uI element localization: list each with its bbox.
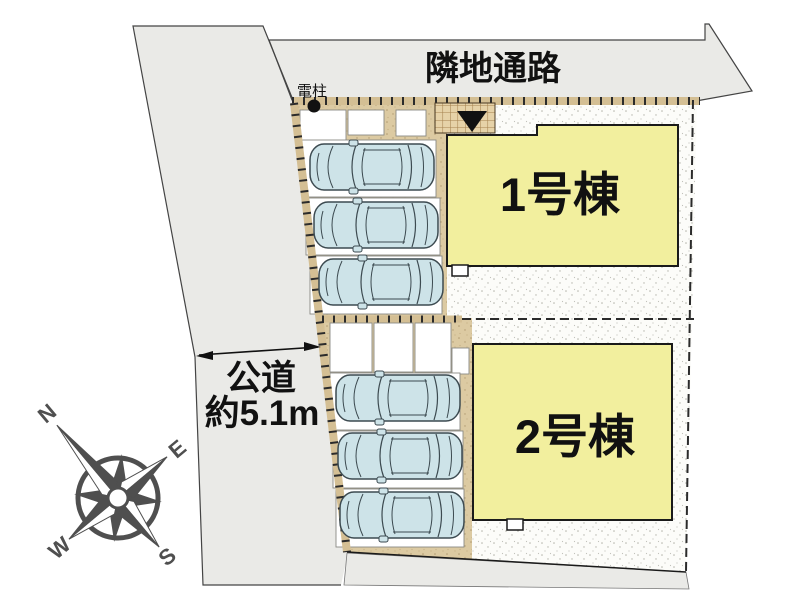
stall	[374, 323, 413, 372]
compass-e: E	[164, 435, 191, 464]
building-1-label: 1号棟	[500, 168, 621, 221]
entrance-mark-lot1	[435, 103, 495, 133]
car	[314, 198, 438, 252]
car	[319, 255, 443, 309]
stall	[348, 110, 384, 135]
utility-pole-label: 電柱	[297, 83, 327, 100]
stall	[330, 323, 372, 372]
road-label-line2: 約5.1m	[205, 394, 320, 433]
road-label-line1: 公道	[226, 359, 296, 398]
porch-building-1	[452, 265, 468, 276]
car	[338, 429, 462, 483]
building-2-label: 2号棟	[515, 410, 636, 463]
car	[336, 371, 460, 425]
stall	[452, 348, 469, 374]
compass-n: N	[33, 399, 61, 428]
neighbor-passage-label: 隣地通路	[425, 50, 562, 88]
compass-s: S	[154, 542, 181, 571]
porch-building-2	[507, 519, 523, 530]
utility-pole-dot	[308, 100, 321, 113]
site-plan-drawing: 1号棟 2号棟 隣地通路 電柱 公道 約5.1m	[0, 0, 800, 600]
stall	[415, 323, 451, 372]
car	[340, 488, 464, 542]
site-plan-page: 1号棟 2号棟 隣地通路 電柱 公道 約5.1m	[0, 0, 800, 600]
car	[310, 140, 434, 194]
stall	[396, 110, 426, 136]
